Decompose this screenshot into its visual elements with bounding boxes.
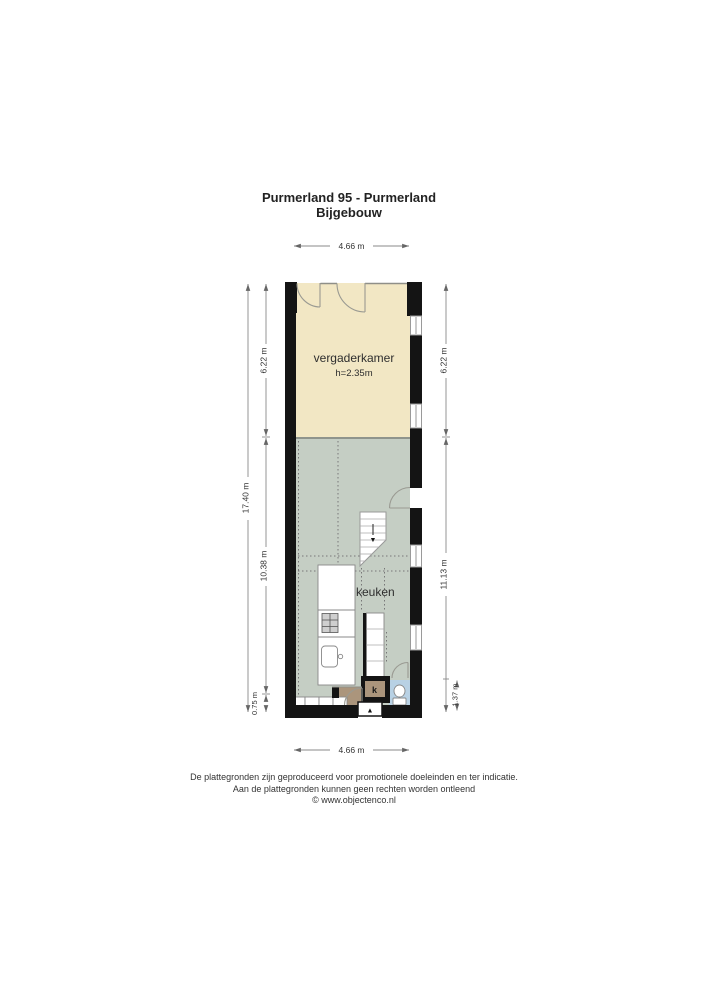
entrance-door: ▲ (358, 702, 382, 716)
dimension-bottom: 4.66 m (294, 745, 409, 755)
floorplan-image: Purmerland 95 - Purmerland Bijgebouw (0, 0, 707, 1000)
dim-right-lower: 1.37 m (451, 684, 460, 707)
disclaimer-line-2: Aan de plattegronden kunnen geen rechten… (233, 784, 475, 794)
window-icon (411, 625, 422, 650)
dimension-right-segments: 6.22 m 11.13 m 1.37 m (439, 284, 460, 712)
stove-icon (322, 614, 338, 633)
dim-top-width: 4.66 m (339, 241, 365, 251)
window-icon (411, 316, 422, 335)
title-line-1: Purmerland 95 - Purmerland (262, 190, 436, 205)
label-ceiling-height: h=2.35m (335, 368, 372, 379)
title-line-2: Bijgebouw (316, 205, 383, 220)
dim-left-upper: 6.22 m (259, 348, 269, 374)
floorplan-page: Purmerland 95 - Purmerland Bijgebouw (0, 0, 707, 1000)
dimension-left-total: 17.40 m (241, 284, 251, 712)
toilet-icon (393, 685, 406, 705)
dimension-top: 4.66 m (294, 241, 409, 251)
label-vergaderkamer: vergaderkamer (314, 351, 395, 365)
floor-plan: ▼ (285, 282, 422, 718)
stairs-lower (363, 613, 387, 678)
dim-right-upper: 6.22 m (439, 348, 449, 374)
dimension-left-segments: 6.22 m 10.38 m 0.75 m (250, 284, 270, 715)
disclaimer: De plattegronden zijn geproduceerd voor … (190, 772, 518, 805)
page-title: Purmerland 95 - Purmerland Bijgebouw (262, 190, 436, 220)
label-keuken: keuken (356, 585, 395, 599)
copyright-line: © www.objectenco.nl (312, 795, 396, 805)
kitchen-counter (318, 565, 355, 685)
dim-right-middle: 11.13 m (439, 559, 449, 589)
dim-left-middle: 10.38 m (259, 551, 269, 582)
dim-left-lower: 0.75 m (250, 692, 259, 715)
entrance-arrow-icon: ▲ (367, 708, 374, 715)
window-icon (411, 404, 422, 428)
window-icon (411, 545, 422, 567)
dim-left-total: 17.40 m (241, 483, 251, 514)
wall-bottom (285, 705, 358, 718)
disclaimer-line-1: De plattegronden zijn geproduceerd voor … (190, 772, 518, 782)
dim-bottom-width: 4.66 m (339, 745, 365, 755)
wall-left (285, 282, 296, 718)
stairs-down-arrow-icon: ▼ (370, 537, 377, 544)
